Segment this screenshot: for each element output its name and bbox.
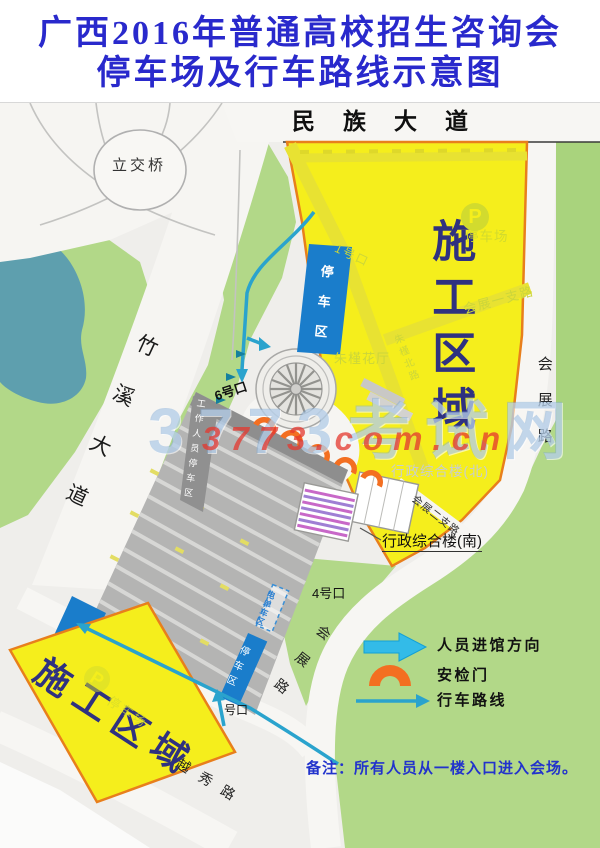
note-text: 备注：所有人员从一楼入口进入会场。 <box>306 757 578 778</box>
parking-lot-label-north: 停车场 <box>465 230 509 244</box>
zhujin-hall-label: 朱槿花厅 <box>334 352 390 366</box>
title-line1: 广西2016年普通高校招生咨询会 <box>0 14 600 54</box>
admin-south-label: 行政综合楼(南) <box>382 534 482 552</box>
construction-north-label: 施工区域 <box>426 218 472 442</box>
parking-route-map-page: 广西2016年普通高校招生咨询会 停车场及行车路线示意图 <box>0 0 600 848</box>
admin-north-label: 行政综合楼(北) <box>391 465 489 479</box>
legend-security-gate-label: 安检门 <box>437 668 490 684</box>
minzu-road-label: 民族大道 <box>292 109 496 133</box>
overpass-label: 立交桥 <box>112 158 166 174</box>
page-title: 广西2016年普通高校招生咨询会 停车场及行车路线示意图 <box>0 14 600 94</box>
title-line2: 停车场及行车路线示意图 <box>0 54 600 94</box>
huizhan-road-label-east: 会展路 <box>536 356 552 464</box>
gate-4-label: 4号口 <box>312 587 345 601</box>
legend-driving-route-label: 行车路线 <box>437 693 507 709</box>
p-parking-icon-north: P <box>461 203 489 231</box>
gate-south-label: 号口 <box>224 704 248 717</box>
legend-entry-direction-label: 人员进馆方向 <box>437 638 542 654</box>
